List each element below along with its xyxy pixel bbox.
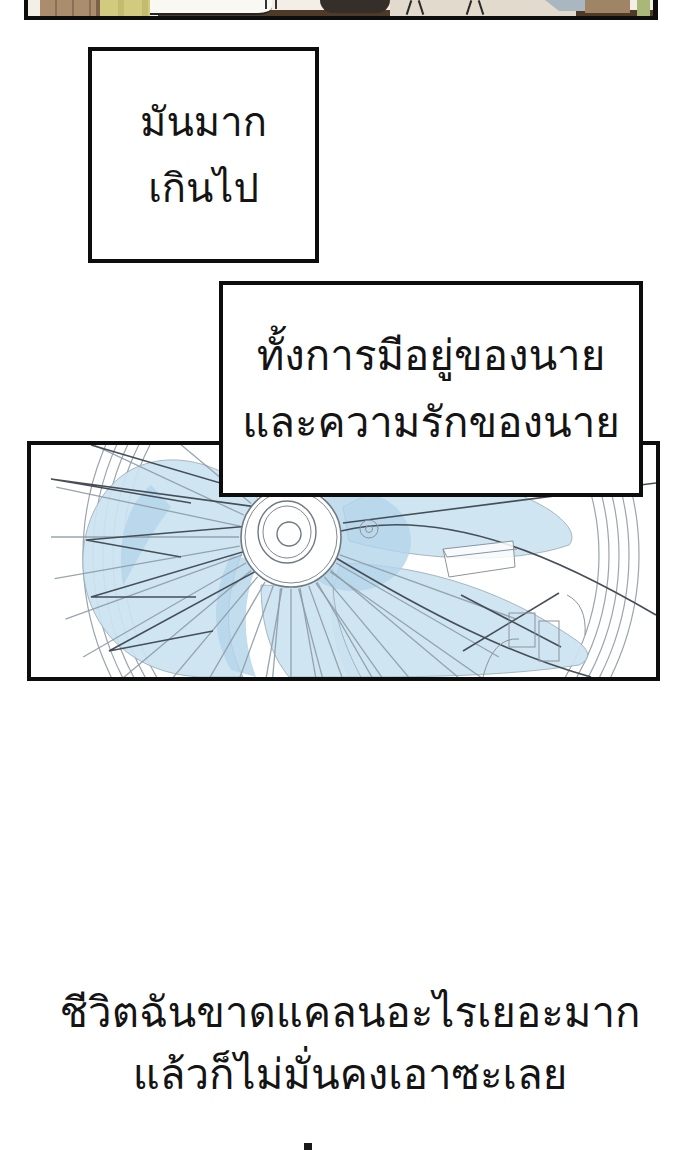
wood-planks — [40, 0, 100, 16]
white-blanket — [150, 0, 272, 15]
speech-box-1-line-2: เกินไป — [148, 155, 259, 221]
speech-box-2-line-2: และความรักของนาย — [242, 389, 620, 456]
caption-line-2: แล้วก็ไม่มั่นคงเอาซะเลย — [0, 1044, 700, 1106]
speech-box-2-line-1: ทั้งการมีอยู่ของนาย — [257, 322, 606, 389]
bottle-outline — [265, 0, 267, 9]
yellow-cloth — [100, 0, 150, 16]
previous-panel-strip — [24, 0, 658, 20]
bottle-outline — [275, 0, 277, 9]
brown-block — [585, 0, 630, 13]
dark-head-shape — [320, 0, 390, 13]
speech-box-1: มันมาก เกินไป — [88, 47, 319, 263]
green-strip — [637, 0, 650, 16]
caption-line-1: ชีวิตฉันขาดแคลนอะไรเยอะมาก — [0, 982, 700, 1044]
speech-box-1-line-1: มันมาก — [140, 89, 267, 155]
narration-caption: ชีวิตฉันขาดแคลนอะไรเยอะมาก แล้วก็ไม่มั่น… — [0, 982, 700, 1106]
speech-box-2: ทั้งการมีอยู่ของนาย และความรักของนาย — [219, 281, 643, 497]
cutoff-text-mark — [304, 1143, 312, 1150]
